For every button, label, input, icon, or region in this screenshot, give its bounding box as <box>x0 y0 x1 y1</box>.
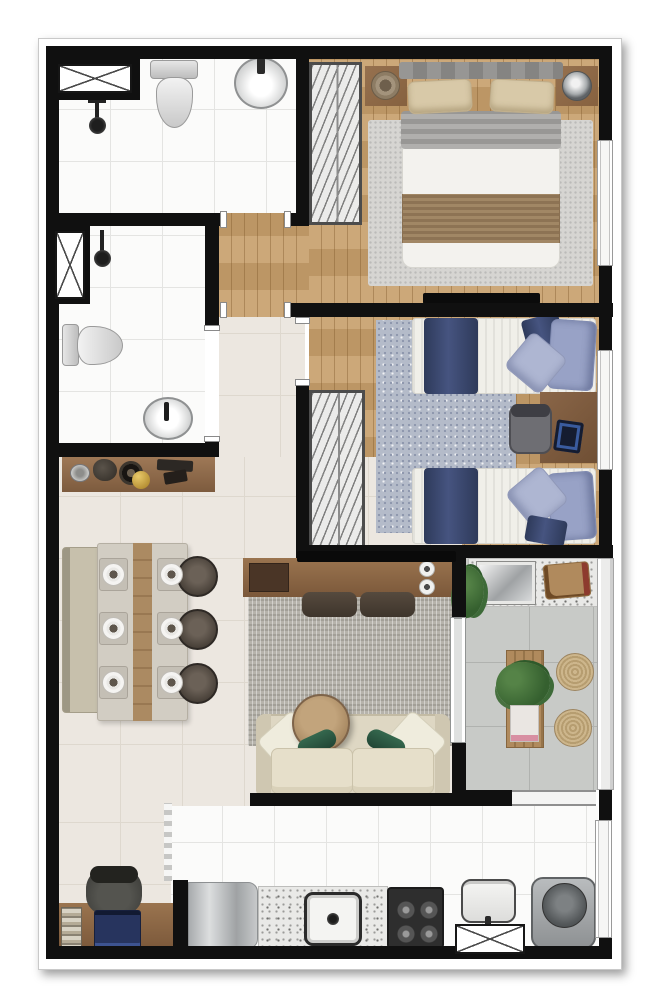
door-jamb <box>284 302 291 318</box>
door-jamb <box>295 379 310 386</box>
exterior-wall <box>46 46 612 959</box>
wall-balcony-left-lower <box>452 743 466 793</box>
bedroom-2-window <box>597 350 613 470</box>
wall-bathroom1-bottom <box>59 213 224 226</box>
laundry-window <box>455 924 525 954</box>
wall-bathroom1-right <box>296 59 309 226</box>
door-jamb <box>220 211 227 228</box>
wall-bathroom2-bottom <box>59 443 219 457</box>
wall-bathroom2-right-upper <box>205 226 219 330</box>
door-jamb <box>204 436 220 442</box>
wall-balcony-bottom <box>462 790 512 806</box>
door-jamb <box>284 211 291 228</box>
bathroom-1-vent-window <box>58 64 132 93</box>
kitchen-window <box>595 820 612 938</box>
wall-balcony-left-upper <box>452 558 466 617</box>
wall-bedrooms-divider <box>288 303 613 317</box>
balcony-service-opening <box>512 790 596 806</box>
door-jamb <box>295 317 310 324</box>
door-jamb <box>204 325 220 331</box>
wall-bathroom1-bottom-b <box>288 213 309 226</box>
bedroom-1-window <box>597 140 613 266</box>
door-jamb <box>220 302 227 318</box>
balcony-railing <box>597 558 614 790</box>
bathroom-2-vent-window <box>55 231 85 299</box>
wall-living-bottom <box>250 793 462 806</box>
living-tv <box>297 551 456 562</box>
floor-plan <box>0 0 666 1000</box>
balcony-sliding-door <box>450 617 466 743</box>
wall-bedroom2-left <box>296 386 309 548</box>
wall-kitchen-stub <box>173 880 188 946</box>
